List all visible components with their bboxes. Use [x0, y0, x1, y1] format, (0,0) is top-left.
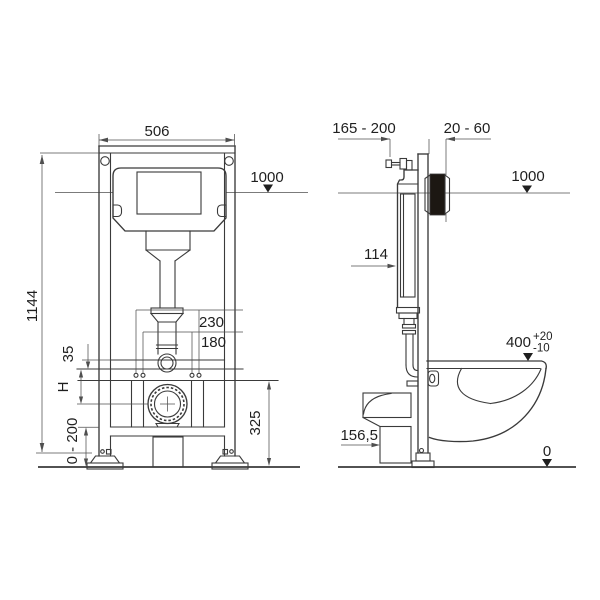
flush-pipe-front — [146, 231, 190, 372]
dim-label-height: 1144 — [24, 290, 41, 322]
bowl-basin-back — [491, 369, 542, 404]
fixing-hole — [197, 373, 201, 377]
dim-outlet-height: 325 — [247, 381, 271, 466]
foot-side — [416, 453, 430, 461]
bowl-outer-profile — [430, 369, 547, 442]
plate-flange-front — [445, 175, 450, 214]
drain-inlet — [363, 393, 411, 418]
drain-duct — [153, 437, 183, 467]
actuator-window — [137, 172, 201, 214]
side-view: 165 - 200 20 - 60 1000 114 400 +20 -10 — [332, 120, 576, 468]
dim-bowl-height: 400 +20 -10 — [506, 331, 553, 361]
cistern-insulation — [401, 194, 416, 297]
drain-outlet-front — [148, 385, 187, 468]
anchor-hole-left — [101, 157, 110, 166]
leg-pin-hole-side — [420, 449, 424, 453]
dim-label-outer-spacing: 230 — [199, 314, 224, 331]
dim-tank-depth: 114 — [351, 246, 396, 268]
dim-label-depth-range: 165 - 200 — [332, 120, 395, 137]
dim-label-leg-adjust: 0 - 200 — [64, 418, 81, 465]
drain-body — [380, 427, 411, 464]
flush-bend — [406, 365, 418, 377]
foot-right — [216, 456, 245, 463]
dim-front-level: 1000 — [250, 169, 283, 193]
cistern-outline — [113, 168, 226, 231]
drain-collar — [156, 424, 179, 428]
cistern-side — [397, 170, 420, 386]
dim-label-floor-level: 0 — [543, 443, 551, 460]
bowl-rim-top — [427, 361, 546, 369]
foot-plate-right — [212, 463, 248, 469]
dim-label-wall-thickness: 20 - 60 — [444, 120, 491, 137]
fill-valve-side — [386, 159, 412, 171]
dim-label-side-level: 1000 — [511, 168, 544, 185]
dim-label-tank-depth: 114 — [364, 246, 388, 263]
fixing-hole — [141, 373, 145, 377]
dim-front-height: 1144 — [24, 153, 99, 453]
dim-label-width: 506 — [144, 123, 169, 140]
toilet-bowl-side — [427, 361, 546, 442]
dim-side-level: 1000 — [511, 168, 544, 193]
dim-wall-thickness: 20 - 60 — [444, 120, 491, 141]
dim-label-drain-height: 156,5 — [340, 427, 378, 444]
level-marker — [522, 186, 532, 194]
bowl-basin-front — [457, 369, 490, 404]
cistern-front — [113, 168, 226, 231]
level-marker — [263, 185, 273, 193]
bell-flange — [151, 308, 183, 314]
flush-valve-flange — [397, 308, 420, 314]
dim-depth-range: 165 - 200 — [332, 120, 395, 157]
dim-floor-level: 0 — [542, 443, 552, 467]
foot-left — [91, 456, 120, 463]
foot-plate-left — [87, 463, 123, 469]
anchor-hole-right — [225, 157, 234, 166]
bell-taper — [151, 314, 183, 323]
dim-front-width: 506 — [99, 123, 235, 146]
leg-pin-hole-left — [101, 450, 105, 454]
technical-drawing-page: 506 1144 1000 230 — [0, 0, 600, 600]
wc-frame-dimension-drawing: 506 1144 1000 230 — [0, 0, 600, 600]
dim-label-outlet-height: 325 — [247, 410, 264, 435]
dim-fixing-spacing: 230 180 — [134, 310, 243, 377]
dim-label-tol-minus: -10 — [533, 343, 550, 355]
dim-label-tol-plus: +20 — [533, 331, 553, 343]
dim-label-inner-spacing: 180 — [201, 334, 226, 351]
level-marker — [523, 353, 533, 361]
fixing-hole — [190, 373, 194, 377]
dim-label-bowl-height: 400 — [506, 334, 531, 351]
dim-label-level: 1000 — [250, 169, 283, 186]
level-marker — [542, 459, 552, 467]
dim-bracket-offset: 35 — [60, 344, 111, 369]
dim-label-fixing-height: H — [55, 382, 72, 393]
dim-drain-height: 156,5 — [340, 427, 380, 447]
dim-label-bracket-offset: 35 — [60, 346, 77, 363]
front-view: 506 1144 1000 230 — [24, 123, 308, 469]
leg-pin-hole-right — [230, 450, 234, 454]
actuator-plate-side — [430, 174, 445, 215]
leg-lock-right — [223, 450, 228, 455]
cistern-clip-left — [113, 205, 122, 217]
fixing-hole — [134, 373, 138, 377]
